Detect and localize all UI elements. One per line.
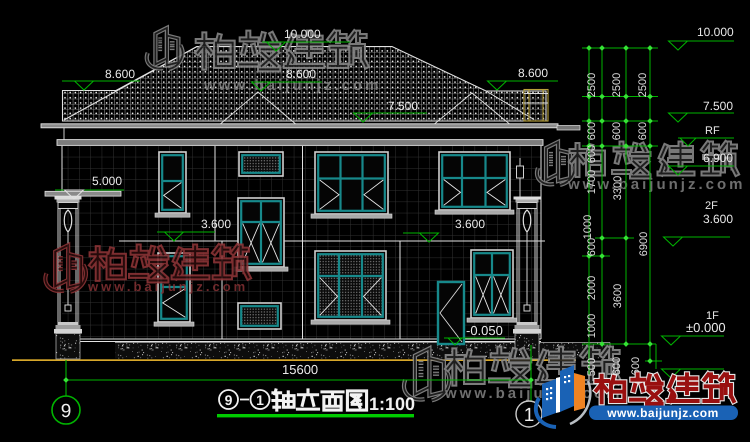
svg-text:www.baijunjz.com: www.baijunjz.com xyxy=(87,279,248,294)
svg-text:1000: 1000 xyxy=(582,215,594,239)
svg-text:3300: 3300 xyxy=(612,176,624,200)
svg-text:600: 600 xyxy=(637,122,649,140)
svg-text:600: 600 xyxy=(611,357,623,375)
svg-text:600: 600 xyxy=(586,145,598,163)
svg-text:2000: 2000 xyxy=(586,276,598,300)
svg-text:9: 9 xyxy=(225,392,233,408)
svg-text:-0.050: -0.050 xyxy=(466,323,503,338)
svg-text:600: 600 xyxy=(611,122,623,140)
svg-text:8.600: 8.600 xyxy=(105,67,135,81)
svg-text:2500: 2500 xyxy=(611,73,623,97)
svg-text:1000: 1000 xyxy=(586,314,598,338)
svg-text:8.600: 8.600 xyxy=(286,67,316,81)
svg-text:3600: 3600 xyxy=(612,284,624,308)
svg-text:1: 1 xyxy=(524,405,535,426)
svg-text:10.000: 10.000 xyxy=(697,25,734,39)
svg-text:5.000: 5.000 xyxy=(92,174,122,188)
svg-text:8.600: 8.600 xyxy=(518,66,548,80)
svg-text:9: 9 xyxy=(61,401,72,422)
svg-text:10.000: 10.000 xyxy=(284,27,321,41)
svg-text:www.baijunjz.com: www.baijunjz.com xyxy=(606,406,719,420)
svg-text:2500: 2500 xyxy=(637,73,649,97)
svg-text:1700: 1700 xyxy=(586,170,598,194)
svg-text:±0.000: ±0.000 xyxy=(686,320,726,335)
svg-text:3.600: 3.600 xyxy=(201,217,231,231)
svg-text:1:100: 1:100 xyxy=(369,394,415,414)
svg-text:3.600: 3.600 xyxy=(703,212,733,226)
svg-text:RF: RF xyxy=(705,125,720,137)
svg-text:500: 500 xyxy=(586,358,598,376)
svg-text:3.600: 3.600 xyxy=(455,217,485,231)
svg-text:2F: 2F xyxy=(705,200,718,212)
svg-text:7.500: 7.500 xyxy=(388,99,418,113)
svg-text:7.500: 7.500 xyxy=(703,99,733,113)
svg-text:1: 1 xyxy=(256,392,264,408)
svg-text:2500: 2500 xyxy=(586,73,598,97)
svg-text:15600: 15600 xyxy=(282,362,318,377)
svg-text:600: 600 xyxy=(586,238,598,256)
svg-text:6.900: 6.900 xyxy=(703,151,733,165)
svg-text:600: 600 xyxy=(586,122,598,140)
svg-text:6900: 6900 xyxy=(638,232,650,256)
